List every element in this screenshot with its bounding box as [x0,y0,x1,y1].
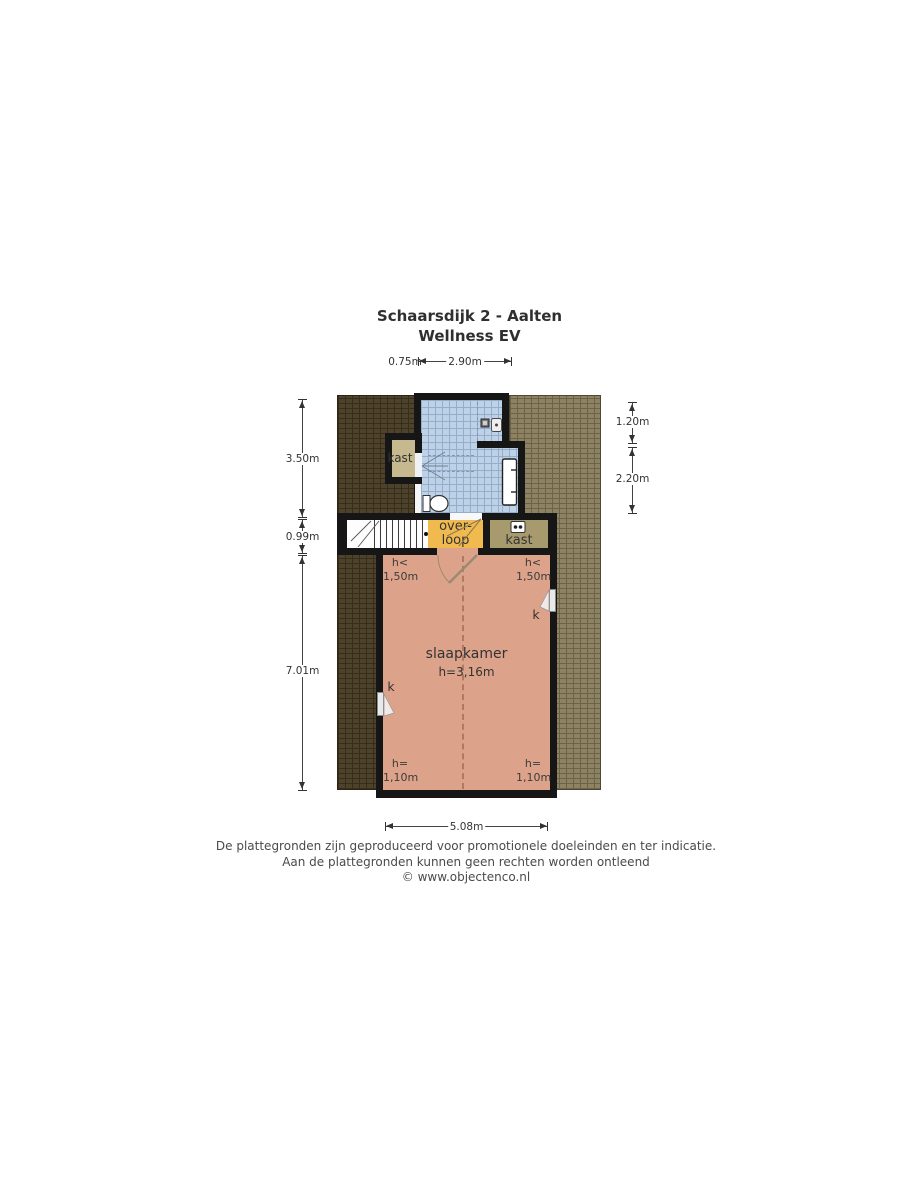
stair-winder-line [358,521,379,547]
dim-arrow [299,521,305,528]
shower-drain-grate [483,421,487,425]
dim-tick [628,513,637,514]
bedroom-door-leaf [449,555,477,583]
dim-arrow [386,823,393,829]
ventilation-unit-dot [514,525,518,529]
dim-tick [298,399,307,400]
bathroom-door-swing [447,519,481,536]
closet-door-swing [422,452,445,466]
bathroom-door-swing [459,519,481,546]
dim-tick [628,447,637,448]
bedroom-door-arc [438,555,449,583]
dim-tick [298,517,307,518]
dimension-left-top: 3.50m [302,400,303,517]
dim-arrow [299,401,305,408]
toilet-bowl-icon [430,496,448,512]
dimension-left-middle: 0.99m [302,520,303,553]
dim-arrow [299,509,305,516]
dim-tick [298,553,307,554]
double-sink-icon [503,459,517,505]
ventilation-unit-dot [519,525,523,529]
dim-tick [628,443,637,444]
window-left-flare [384,694,394,716]
dim-arrow [299,782,305,789]
dim-tick [298,790,307,791]
floor-plan-page: Schaarsdijk 2 - Aalten Wellness EV 0.75m… [0,0,900,1200]
toilet-icon [423,496,430,512]
stair-winder-line [351,521,371,541]
dim-arrow [299,557,305,564]
dim-label: 1.20m [614,416,652,428]
dim-arrow [629,505,635,512]
dim-arrow [299,545,305,552]
dim-tick [298,519,307,520]
dim-arrow [629,404,635,411]
closet-door-swing [422,466,445,480]
dim-label: 2.20m [614,473,652,485]
disclaimer: De plattegronden zijn geproduceerd voor … [116,839,816,886]
dim-tick [298,555,307,556]
dim-tick [547,822,548,831]
dimension-left-bottom: 7.01m [302,556,303,790]
disclaimer-line1: De plattegronden zijn geproduceerd voor … [116,839,816,855]
dim-tick [628,402,637,403]
dim-label: 0.99m [284,531,322,543]
dim-arrow [629,435,635,442]
dim-arrow [540,823,547,829]
disclaimer-line2: Aan de plattegronden kunnen geen rechten… [116,855,816,871]
plan-linework [0,0,900,1200]
ventilation-unit-icon [511,522,525,533]
dimension-right-bottom: 2.20m [632,448,633,513]
dimension-bottom: 5.08m [385,826,548,827]
disclaimer-line3: © www.objectenco.nl [116,870,816,886]
dimension-right-top: 1.20m [632,403,633,443]
stair-walkline-dot [424,532,428,536]
dim-arrow [629,449,635,456]
dim-label: 7.01m [284,665,322,677]
dim-label: 3.50m [284,453,322,465]
washbasin-drain [495,424,498,427]
dim-label: 5.08m [448,821,486,833]
window-right-flare [540,590,549,611]
